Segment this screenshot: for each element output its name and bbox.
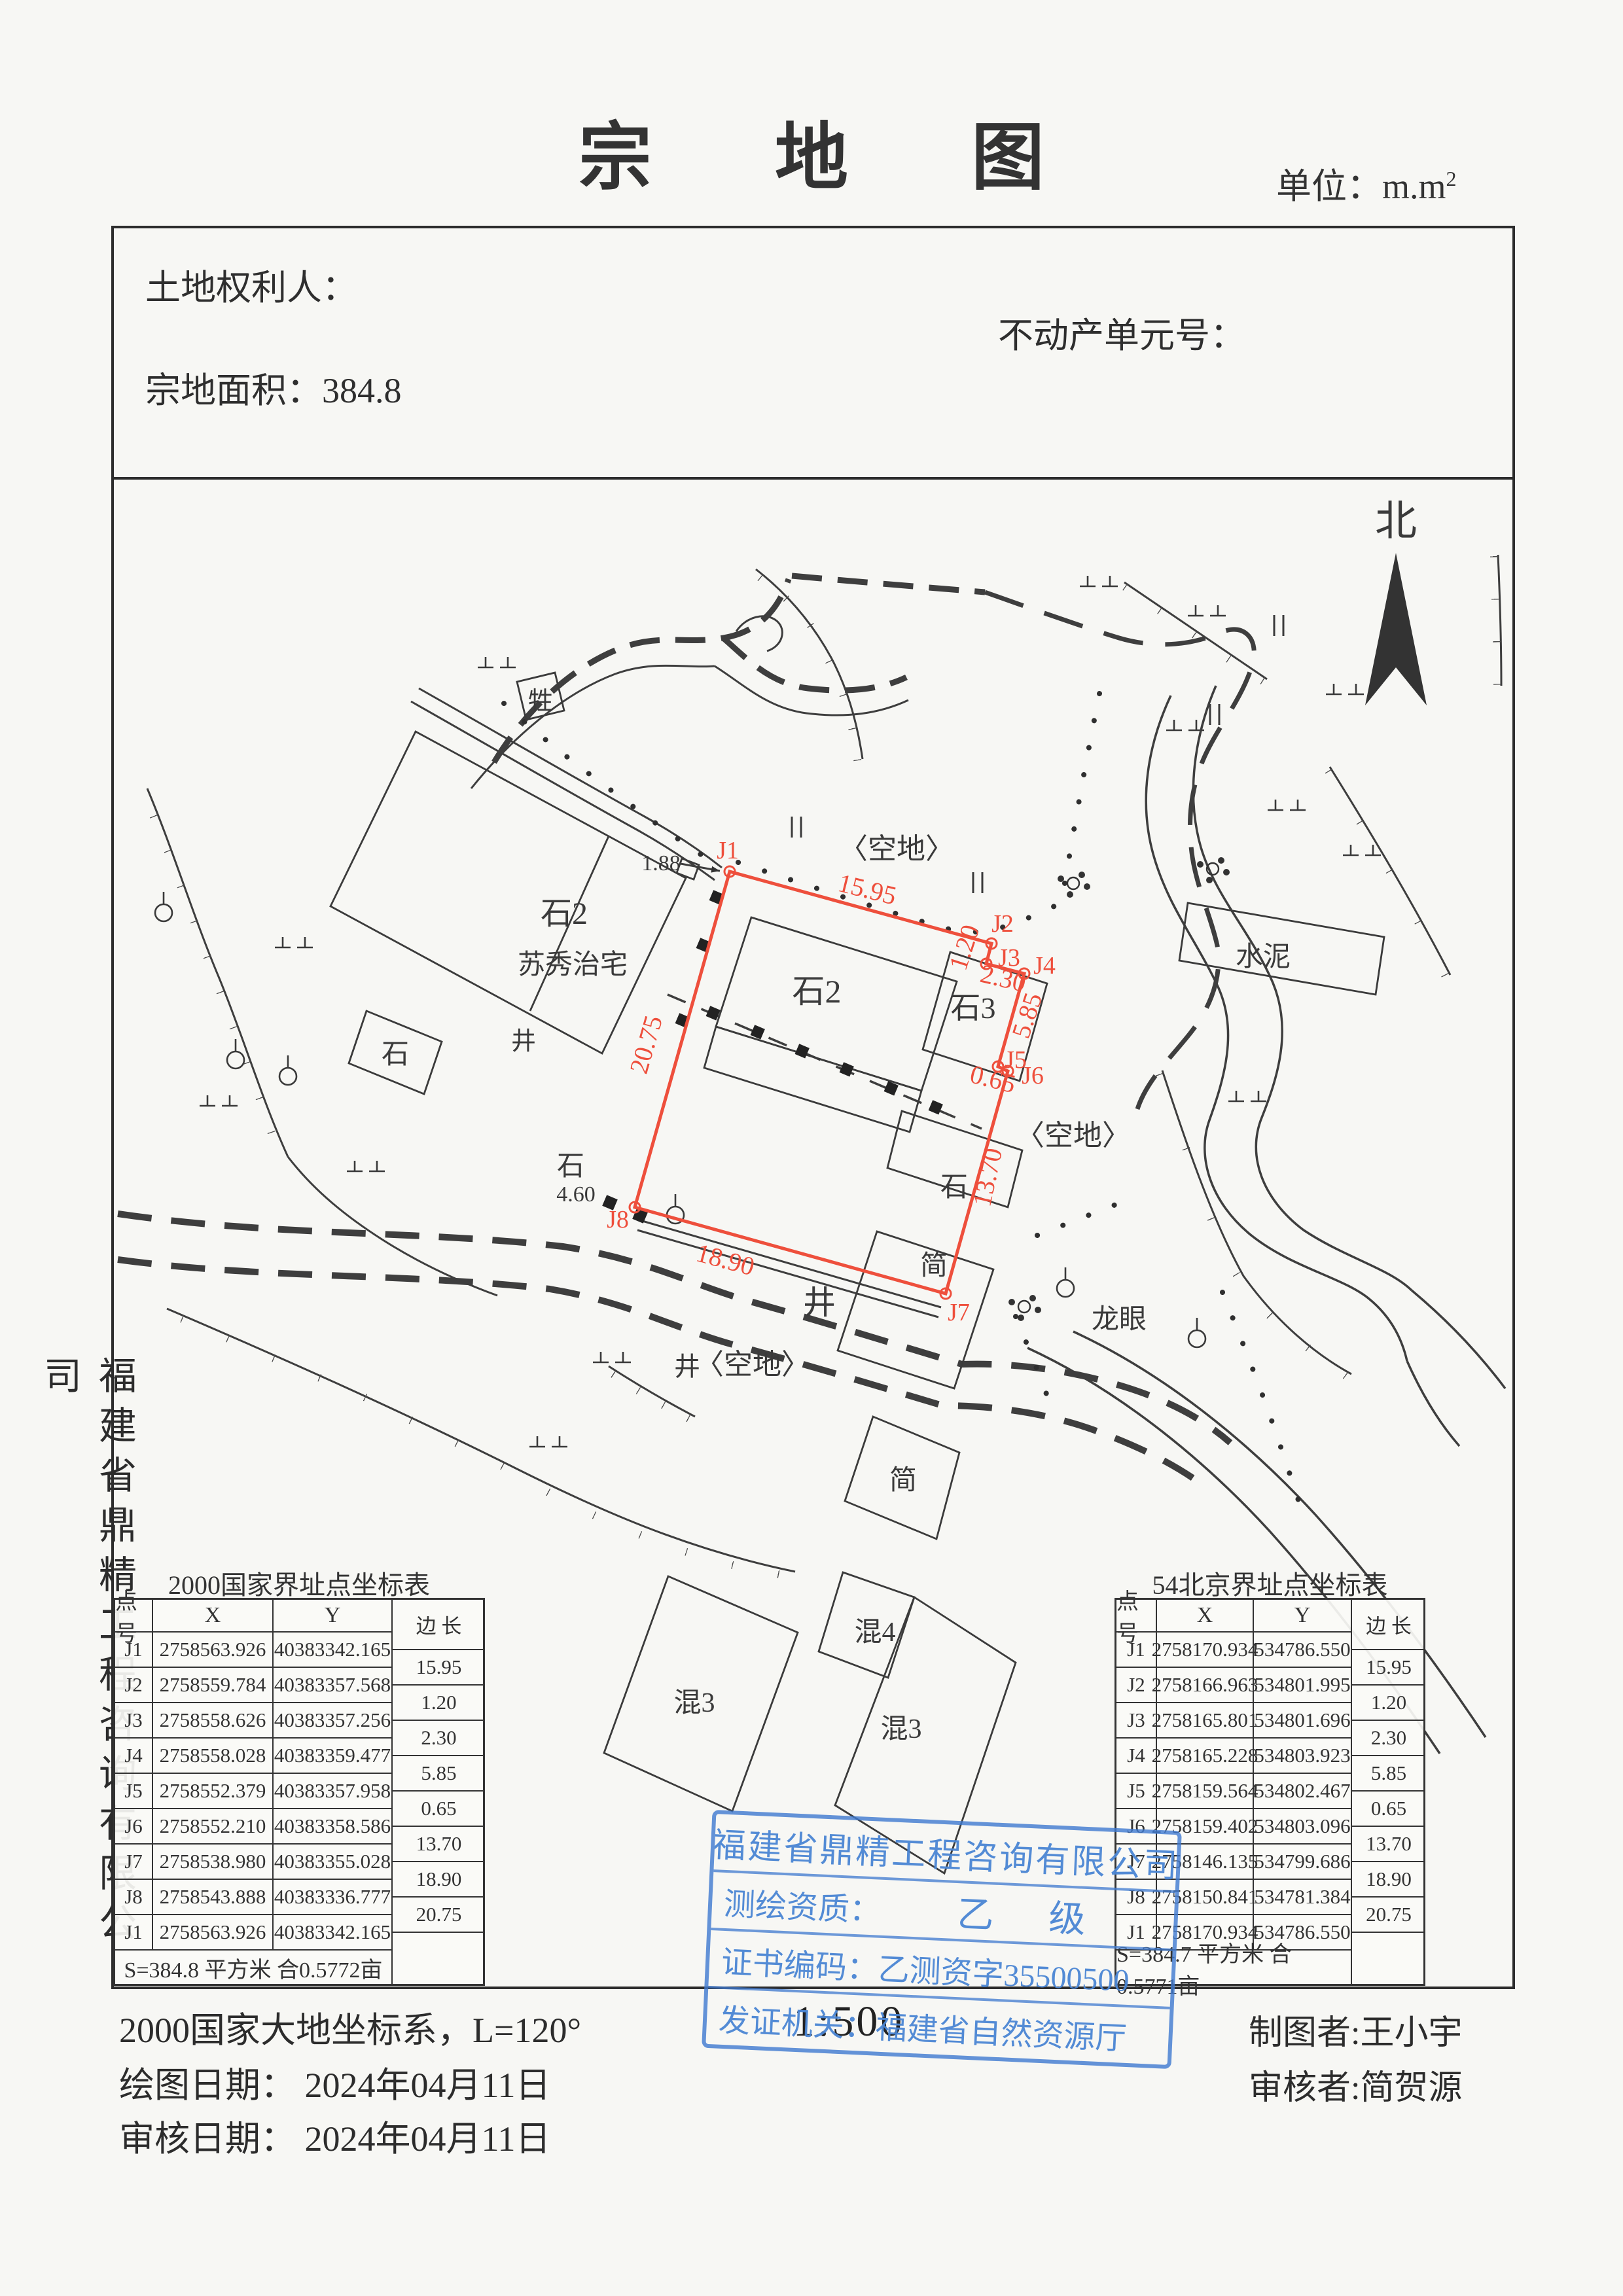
label-hun3-b: 混3	[880, 1714, 921, 1744]
parcel-area-label: 宗地面积：384.8	[145, 361, 402, 413]
length-cell: 5.85	[393, 1756, 485, 1792]
length-cell: 20.75	[1352, 1898, 1425, 1933]
coord-table-2000-title: 2000国家界址点坐标表	[113, 1564, 485, 1602]
table-cell: 2758552.210	[153, 1809, 274, 1845]
length-cell: 5.85	[1352, 1756, 1425, 1792]
table-cell: 534802.467	[1254, 1774, 1352, 1809]
table-cell: J8	[115, 1880, 153, 1915]
table-cell: J2	[115, 1668, 153, 1703]
col-header-x: X	[153, 1600, 274, 1633]
table-cell: 2758166.963	[1157, 1668, 1254, 1703]
label-sheng: 牲	[528, 688, 553, 715]
label-shi-a: 石	[382, 1040, 409, 1070]
table-cell: 2758159.564	[1157, 1774, 1254, 1809]
unit-label: 单位：m.m2	[1276, 157, 1457, 209]
table-cell: 2758170.934	[1157, 1633, 1254, 1668]
north-arrow: 北	[1365, 498, 1427, 705]
label-shi-c: 石	[940, 1173, 968, 1203]
table-cell: 40383336.777	[274, 1880, 393, 1915]
label-kongdi-top: 〈空地〉	[839, 833, 954, 865]
length-cell: 1.20	[1352, 1686, 1425, 1721]
stamp-qualification-label: 测绘资质：	[723, 1877, 882, 1930]
length-cell: 0.65	[393, 1792, 485, 1827]
length-cell-empty	[393, 1933, 485, 1984]
label-shi-b: 石	[557, 1152, 584, 1182]
length-cell: 0.65	[1352, 1792, 1425, 1827]
point-label-j6: J6	[1022, 1062, 1044, 1089]
dim-188: 1.88	[641, 851, 681, 875]
label-shi3: 石3	[951, 991, 996, 1025]
table-cell: 2758543.888	[153, 1880, 274, 1915]
table-cell: 2758538.980	[153, 1845, 274, 1880]
label-longyan: 龙眼	[1092, 1305, 1147, 1335]
table-cell: 40383357.256	[274, 1703, 393, 1739]
label-hun4: 混4	[854, 1617, 895, 1648]
north-arrow-icon	[1365, 553, 1427, 705]
table-cell: 40383357.958	[274, 1774, 393, 1809]
unit-sup: 2	[1446, 167, 1457, 190]
coord-table-2000: 2000国家界址点坐标表 点 号 X Y J12758563.926403833…	[113, 1598, 485, 1986]
table-cell: 2758563.926	[153, 1633, 274, 1668]
certification-stamp: 福建省鼎精工程咨询有限公司 测绘资质：乙 级 证书编码：乙测资字35500500…	[702, 1810, 1182, 2069]
edge-label-585: 5.85	[1006, 989, 1048, 1042]
length-cell: 15.95	[393, 1650, 485, 1686]
vegetation-symbols	[155, 576, 1381, 1447]
point-label-j1: J1	[717, 837, 739, 864]
table-cell: J1	[115, 1633, 153, 1668]
table-cell: 2758558.028	[153, 1739, 274, 1774]
parcel-map-sheet: { "doc": {"title": "宗 地 图", "unit_prefix…	[0, 0, 1623, 2296]
table-cell: 40383357.568	[274, 1668, 393, 1703]
reviewer: 审核者:简贺源	[1249, 2060, 1462, 2109]
label-parcel-building: 石2	[793, 973, 842, 1010]
label-hun3-a: 混3	[673, 1688, 715, 1718]
table-cell: J4	[115, 1739, 153, 1774]
point-label-j8: J8	[607, 1206, 629, 1233]
drawing-date: 绘图日期： 2024年04月11日	[119, 2056, 551, 2108]
edge-label-2075: 20.75	[624, 1012, 668, 1077]
length-cell: 18.90	[1352, 1862, 1425, 1898]
table-cell: 2758559.784	[153, 1668, 274, 1703]
table-cell: 534801.995	[1254, 1668, 1352, 1703]
table-cell: 2758558.626	[153, 1703, 274, 1739]
length-cell: 1.20	[393, 1686, 485, 1721]
label-shuini: 水泥	[1236, 942, 1291, 972]
table-cell: J7	[115, 1845, 153, 1880]
table-cell: 40383358.586	[274, 1809, 393, 1845]
stamp-qualification-value: 乙 级	[880, 1881, 1163, 1947]
table-cell: 40383359.477	[274, 1739, 393, 1774]
table-cell: 534803.923	[1254, 1739, 1352, 1774]
label-jing-a: 井	[511, 1028, 536, 1055]
review-date: 审核日期： 2024年04月11日	[119, 2110, 551, 2161]
edge-length-labels: 15.95 1.20 2.30 5.85 0.65 13.70 18.90 20…	[624, 868, 1048, 1281]
col-header-length: 边 长	[1352, 1600, 1425, 1650]
north-label: 北	[1375, 498, 1417, 544]
label-jing-c: 井	[674, 1352, 700, 1381]
col-header-x: X	[1157, 1600, 1254, 1633]
label-kongdi-right: 〈空地〉	[1016, 1120, 1131, 1152]
length-cell: 13.70	[393, 1827, 485, 1862]
label-house-type: 石2	[541, 896, 588, 931]
length-cell: 13.70	[1352, 1827, 1425, 1862]
table-cell: 40383342.165	[274, 1915, 393, 1951]
length-cell: 20.75	[393, 1898, 485, 1933]
label-house-name: 苏秀治宅	[518, 949, 628, 980]
table-cell: 534801.696	[1254, 1703, 1352, 1739]
land-owner-label: 土地权利人：	[145, 258, 357, 310]
table-cell: 534803.096	[1254, 1809, 1352, 1845]
label-jian-lower: 简	[889, 1466, 917, 1496]
table-cell: 534799.686	[1254, 1845, 1352, 1880]
estate-unit-label: 不动产单元号：	[998, 306, 1245, 358]
edge-label-1890: 18.90	[693, 1238, 758, 1282]
label-kongdi-bottom: 〈空地〉	[695, 1349, 810, 1381]
table-cell: J6	[115, 1809, 153, 1845]
label-jian-upper: 简	[920, 1251, 948, 1281]
table-cell: 2758165.801	[1157, 1703, 1254, 1739]
table-cell: 534786.550	[1254, 1633, 1352, 1668]
dotted-boundaries	[504, 694, 1301, 1508]
length-cell: 18.90	[393, 1862, 485, 1898]
table-cell: 2758165.228	[1157, 1739, 1254, 1774]
edge-label-1370: 13.70	[967, 1145, 1008, 1209]
length-cell: 15.95	[1352, 1650, 1425, 1686]
coord-table-54-title: 54北京界址点坐标表	[1115, 1564, 1425, 1602]
col-header-y: Y	[274, 1600, 393, 1633]
table-cell: J5	[115, 1774, 153, 1809]
drafter: 制图者:王小宇	[1249, 2005, 1462, 2054]
unit-prefix: 单位：m.m	[1276, 167, 1446, 206]
coordinate-system-note: 2000国家大地坐标系，L=120°	[119, 2001, 581, 2053]
col-header-point: 点 号	[1116, 1600, 1157, 1633]
table-cell: 40383342.165	[274, 1633, 393, 1668]
table-summary: S=384.8 平方米 合0.5772亩	[115, 1951, 393, 1985]
table-cell: J3	[115, 1703, 153, 1739]
point-label-j7: J7	[948, 1299, 970, 1326]
col-header-point: 点 号	[115, 1600, 153, 1633]
point-label-j2: J2	[991, 910, 1014, 938]
table-cell: 2758552.379	[153, 1774, 274, 1809]
table-cell: J1	[115, 1915, 153, 1951]
length-cell-empty	[1352, 1933, 1425, 1984]
point-label-j4: J4	[1033, 952, 1056, 980]
col-header-length: 边 长	[393, 1600, 485, 1650]
table-cell: 2758563.926	[153, 1915, 274, 1951]
length-cell: 2.30	[1352, 1721, 1425, 1756]
length-cell: 2.30	[393, 1721, 485, 1756]
label-jing-b: 井	[803, 1284, 836, 1321]
table-cell: 534781.384	[1254, 1880, 1352, 1915]
table-cell: 40383355.028	[274, 1845, 393, 1880]
col-header-y: Y	[1254, 1600, 1352, 1633]
dim-460: 4.60	[556, 1182, 596, 1207]
slope-hatching	[157, 556, 1501, 1570]
